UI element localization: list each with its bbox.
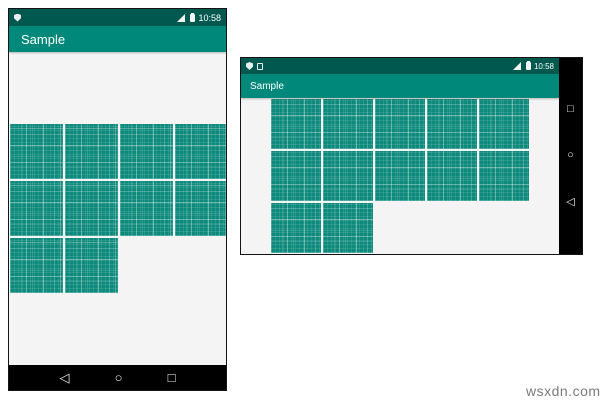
grid-tile[interactable] xyxy=(65,124,118,179)
grid-view xyxy=(271,99,529,253)
grid-tile[interactable] xyxy=(10,238,63,293)
grid-tile[interactable] xyxy=(323,151,373,201)
portrait-screenshot: 10:58 Sample ◁ ○ □ xyxy=(8,8,227,391)
grid-tile[interactable] xyxy=(271,99,321,149)
grid-row xyxy=(10,124,226,179)
back-button[interactable]: ◁ xyxy=(566,197,574,208)
app-title: Sample xyxy=(21,32,65,47)
grid-tile[interactable] xyxy=(120,181,173,236)
shield-notification-icon xyxy=(14,14,21,22)
grid-tile[interactable] xyxy=(375,99,425,149)
grid-row xyxy=(271,99,529,149)
app-bar: Sample xyxy=(9,26,226,52)
back-button[interactable]: ◁ xyxy=(60,371,70,384)
grid-tile[interactable] xyxy=(427,151,477,201)
grid-row xyxy=(10,238,226,293)
grid-view xyxy=(10,124,226,293)
grid-tile[interactable] xyxy=(10,124,63,179)
grid-tile[interactable] xyxy=(175,124,226,179)
grid-tile[interactable] xyxy=(375,151,425,201)
shield-notification-icon xyxy=(246,62,253,70)
grid-tile[interactable] xyxy=(120,124,173,179)
battery-icon xyxy=(526,62,531,70)
signal-icon xyxy=(513,62,521,70)
grid-tile[interactable] xyxy=(65,181,118,236)
home-button[interactable]: ○ xyxy=(567,150,574,161)
square-notification-icon xyxy=(257,63,263,70)
grid-tile[interactable] xyxy=(271,203,321,253)
status-time: 10:58 xyxy=(198,13,221,23)
home-button[interactable]: ○ xyxy=(115,371,123,384)
grid-tile[interactable] xyxy=(175,181,226,236)
grid-tile[interactable] xyxy=(323,203,373,253)
status-time: 10:58 xyxy=(534,62,554,71)
grid-tile[interactable] xyxy=(271,151,321,201)
content-area xyxy=(9,52,226,365)
navigation-bar: □ ○ ◁ xyxy=(559,58,582,254)
recents-button[interactable]: □ xyxy=(168,371,176,384)
grid-row xyxy=(271,151,529,201)
grid-row xyxy=(10,181,226,236)
grid-row xyxy=(271,203,529,253)
navigation-bar: ◁ ○ □ xyxy=(9,365,226,390)
battery-icon xyxy=(190,14,195,22)
grid-tile[interactable] xyxy=(479,99,529,149)
grid-tile[interactable] xyxy=(10,181,63,236)
app-title: Sample xyxy=(250,81,284,92)
watermark: wsxdn.com xyxy=(526,383,600,399)
status-bar: 10:58 xyxy=(241,58,559,74)
signal-icon xyxy=(177,14,185,22)
status-bar: 10:58 xyxy=(9,9,226,26)
grid-tile[interactable] xyxy=(427,99,477,149)
grid-tile[interactable] xyxy=(323,99,373,149)
grid-tile[interactable] xyxy=(65,238,118,293)
app-bar: Sample xyxy=(241,74,559,98)
grid-tile[interactable] xyxy=(479,151,529,201)
content-area xyxy=(241,98,559,254)
landscape-screenshot: 10:58 Sample □ ○ ◁ xyxy=(240,57,583,255)
recents-button[interactable]: □ xyxy=(567,104,574,115)
